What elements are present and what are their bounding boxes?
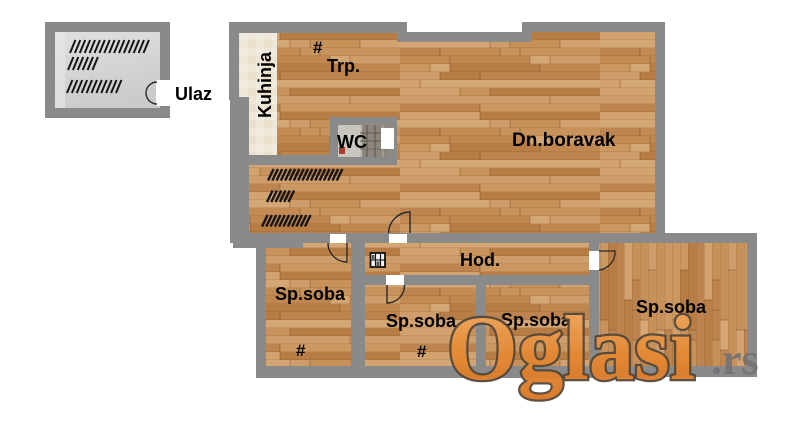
svg-text:Hod.: Hod. bbox=[460, 250, 500, 270]
svg-text:WC: WC bbox=[337, 132, 367, 152]
svg-text:Trp.: Trp. bbox=[327, 56, 360, 76]
svg-text:Oglasi: Oglasi bbox=[447, 297, 695, 399]
svg-text:.rs: .rs bbox=[711, 335, 759, 384]
svg-text:#: # bbox=[417, 342, 427, 361]
svg-text:Kuhinja: Kuhinja bbox=[255, 51, 275, 118]
svg-text:Ulaz: Ulaz bbox=[175, 84, 212, 104]
svg-text:Dn.boravak: Dn.boravak bbox=[512, 130, 616, 151]
svg-text:#: # bbox=[313, 38, 323, 57]
svg-text:Sp.soba: Sp.soba bbox=[275, 284, 346, 304]
svg-text:#: # bbox=[296, 341, 306, 360]
